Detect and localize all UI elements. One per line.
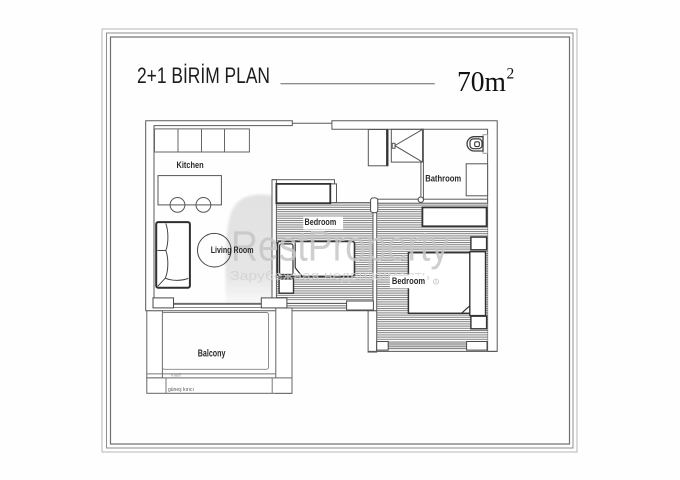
svg-text:Kitchen: Kitchen: [177, 160, 204, 170]
svg-text:R: R: [435, 280, 438, 284]
svg-text:Balcony: Balcony: [198, 348, 226, 359]
svg-text:motif: motif: [171, 372, 182, 377]
svg-text:2+1 BİRİM PLAN: 2+1 BİRİM PLAN: [137, 63, 270, 88]
svg-text:Bedroom: Bedroom: [392, 276, 425, 286]
svg-text:2: 2: [507, 66, 515, 83]
svg-text:güneş kırıcı: güneş kırıcı: [168, 387, 194, 393]
svg-text:Bathroom: Bathroom: [425, 174, 461, 184]
svg-text:RestProperty: RestProperty: [231, 224, 450, 271]
svg-text:Living Room: Living Room: [211, 245, 254, 255]
svg-text:Bedroom: Bedroom: [305, 217, 337, 227]
svg-text:70m: 70m: [457, 66, 506, 98]
